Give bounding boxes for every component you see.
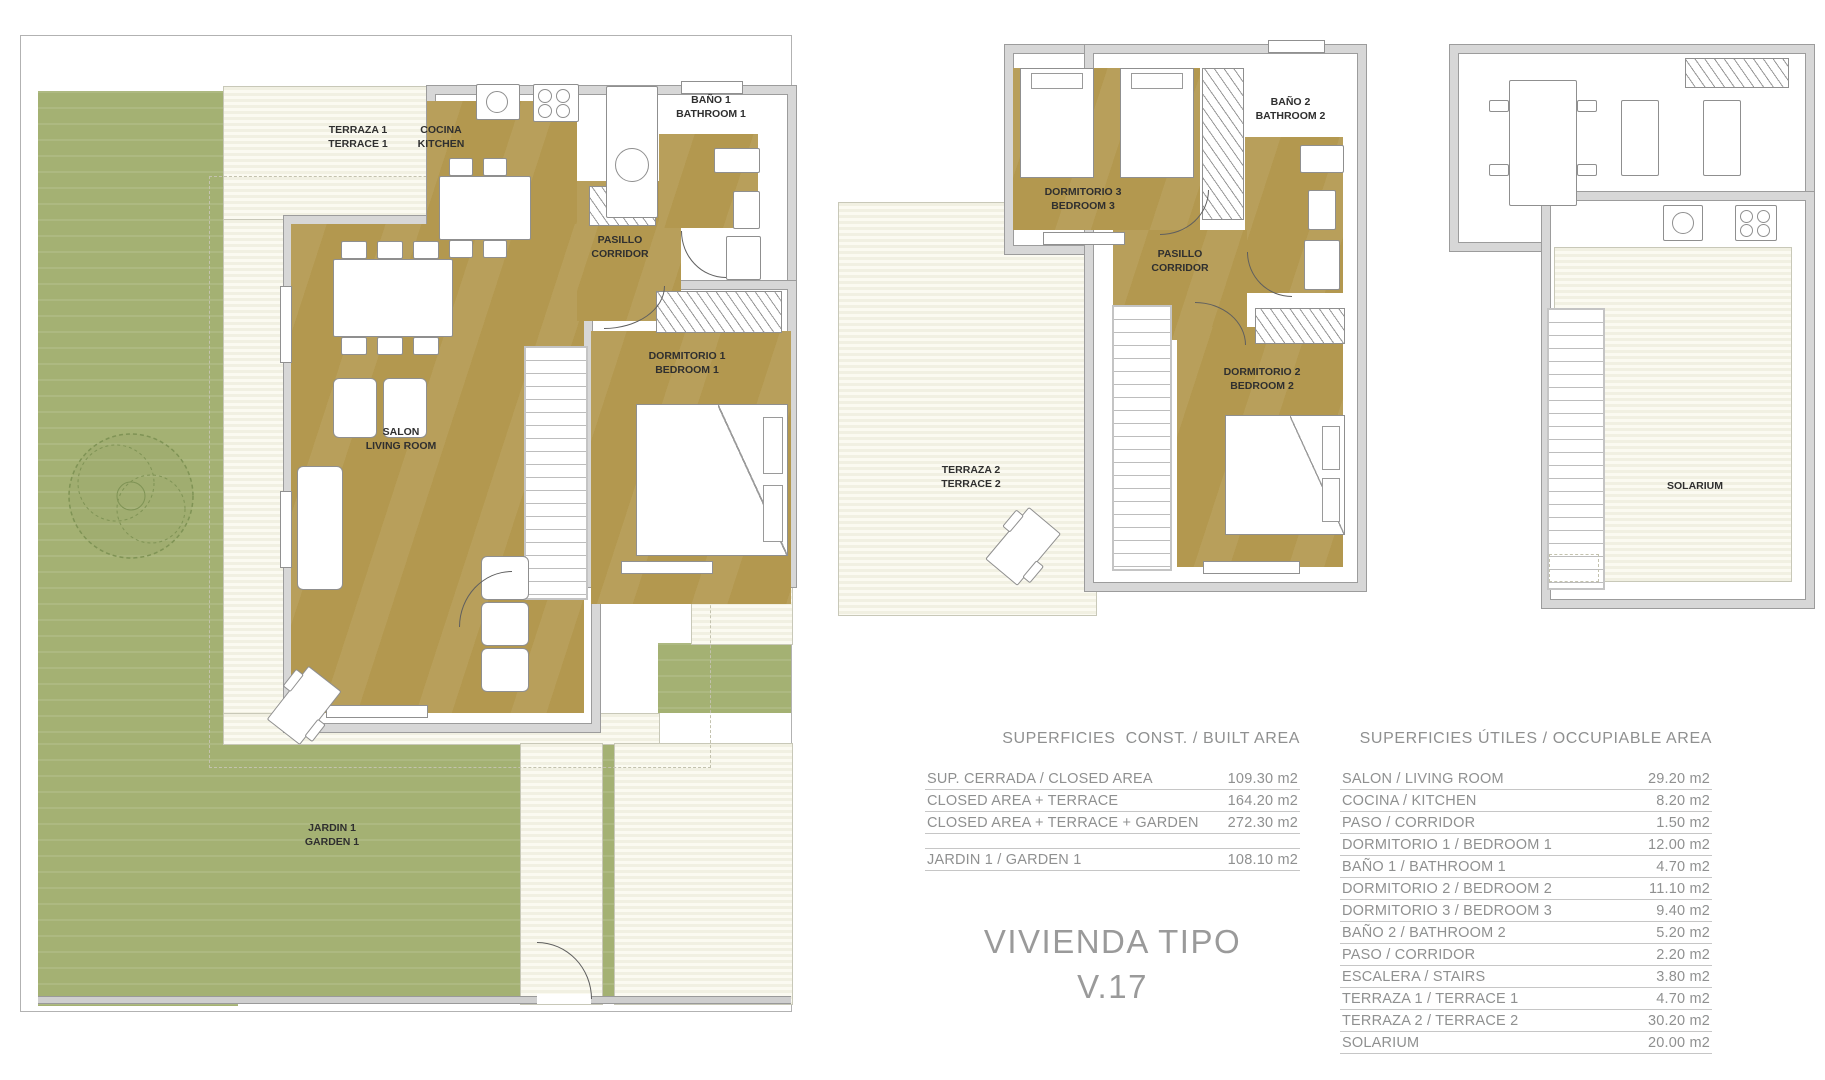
row-value: 272.30 m2 bbox=[1218, 815, 1298, 831]
label-bathroom2: BAÑO 2 BATHROOM 2 bbox=[1233, 96, 1348, 124]
row-label: JARDIN 1 / GARDEN 1 bbox=[927, 852, 1081, 868]
row-label: DORMITORIO 3 / BEDROOM 3 bbox=[1342, 903, 1552, 919]
table-row: DORMITORIO 3 / BEDROOM 3 9.40 m2 bbox=[1340, 900, 1712, 922]
title-line-1: VIVIENDA TIPO bbox=[925, 920, 1300, 965]
sink-basin-icon bbox=[486, 91, 508, 113]
row-value: 4.70 m2 bbox=[1646, 859, 1710, 875]
plot-bottom-wall bbox=[38, 996, 791, 1004]
stairs-first-floor bbox=[1112, 305, 1172, 571]
chair bbox=[413, 337, 439, 355]
kitchen-table bbox=[439, 176, 531, 240]
stairs-roof bbox=[1547, 308, 1605, 590]
shower-icon bbox=[726, 236, 761, 280]
table-row: BAÑO 1 / BATHROOM 1 4.70 m2 bbox=[1340, 856, 1712, 878]
table-row: JARDIN 1 / GARDEN 1 108.10 m2 bbox=[925, 848, 1300, 871]
page-title: VIVIENDA TIPO V.17 bbox=[925, 920, 1300, 1009]
window bbox=[280, 491, 292, 568]
row-label: SOLARIUM bbox=[1342, 1035, 1419, 1051]
row-label: PASO / CORRIDOR bbox=[1342, 947, 1475, 963]
label-kitchen: COCINA KITCHEN bbox=[381, 124, 501, 152]
double-bed bbox=[636, 404, 788, 556]
toilet-icon bbox=[733, 191, 760, 229]
table-row: PASO / CORRIDOR 2.20 m2 bbox=[1340, 944, 1712, 966]
shower-icon bbox=[1304, 240, 1340, 290]
chair bbox=[413, 241, 439, 259]
label-terrace2: TERRAZA 2 TERRACE 2 bbox=[911, 464, 1031, 492]
label-corridor-gf: PASILLO CORRIDOR bbox=[560, 234, 680, 262]
row-value: 29.20 m2 bbox=[1638, 771, 1710, 787]
chair bbox=[341, 241, 367, 259]
window bbox=[1203, 561, 1300, 574]
label-corridor-ff: PASILLO CORRIDOR bbox=[1120, 248, 1240, 276]
table-row: COCINA / KITCHEN 8.20 m2 bbox=[1340, 790, 1712, 812]
pillow bbox=[763, 485, 783, 542]
occupiable-area-header: SUPERFICIES ÚTILES / OCCUPIABLE AREA bbox=[1340, 730, 1712, 748]
pouf bbox=[481, 648, 529, 692]
outdoor-sink-basin-icon bbox=[1672, 212, 1694, 234]
stairs-ground bbox=[524, 346, 588, 600]
chair bbox=[449, 158, 473, 176]
chair bbox=[1489, 164, 1509, 176]
label-solarium: SOLARIUM bbox=[1635, 480, 1755, 494]
tree-icon bbox=[56, 421, 206, 571]
roof-table bbox=[1509, 80, 1577, 206]
chair bbox=[483, 240, 507, 258]
label-bathroom1: BAÑO 1 BATHROOM 1 bbox=[651, 94, 771, 122]
row-value: 2.20 m2 bbox=[1646, 947, 1710, 963]
table-row: DORMITORIO 1 / BEDROOM 1 12.00 m2 bbox=[1340, 834, 1712, 856]
built-area-table: SUPERFICIES CONST. / BUILT AREA SUP. CER… bbox=[925, 730, 1300, 871]
hob-burner-icon bbox=[1740, 210, 1753, 223]
row-label: DORMITORIO 2 / BEDROOM 2 bbox=[1342, 881, 1552, 897]
table-row: DORMITORIO 2 / BEDROOM 2 11.10 m2 bbox=[1340, 878, 1712, 900]
row-label: SUP. CERRADA / CLOSED AREA bbox=[927, 771, 1153, 787]
bath-sink-icon bbox=[1300, 145, 1344, 173]
floorplan-sheet: TERRAZA 1 TERRACE 1 COCINA KITCHEN BAÑO … bbox=[0, 0, 1825, 1080]
first-floor-plan: DORMITORIO 3 BEDROOM 3 BAÑO 2 BATHROOM 2… bbox=[838, 40, 1358, 620]
hob-burner-icon bbox=[538, 89, 552, 103]
hob-burner-icon bbox=[1740, 224, 1753, 237]
row-label: DORMITORIO 1 / BEDROOM 1 bbox=[1342, 837, 1552, 853]
row-value: 12.00 m2 bbox=[1638, 837, 1710, 853]
built-area-header: SUPERFICIES CONST. / BUILT AREA bbox=[925, 730, 1300, 748]
bath-sink-icon bbox=[714, 148, 760, 173]
label-bedroom3: DORMITORIO 3 BEDROOM 3 bbox=[1023, 186, 1143, 214]
roof-plan: SOLARIUM bbox=[1447, 42, 1807, 597]
row-value: 164.20 m2 bbox=[1218, 793, 1298, 809]
row-label: TERRAZA 1 / TERRACE 1 bbox=[1342, 991, 1518, 1007]
window bbox=[1043, 232, 1125, 245]
row-label: TERRAZA 2 / TERRACE 2 bbox=[1342, 1013, 1518, 1029]
bbq-hob-icon bbox=[1735, 205, 1777, 241]
double-bed bbox=[1225, 415, 1345, 535]
toilet-icon bbox=[1308, 190, 1336, 230]
hob-burner-icon bbox=[1757, 210, 1770, 223]
row-value: 108.10 m2 bbox=[1218, 852, 1298, 868]
washer-icon bbox=[615, 148, 649, 182]
chair bbox=[483, 158, 507, 176]
ground-floor-plan: TERRAZA 1 TERRACE 1 COCINA KITCHEN BAÑO … bbox=[20, 35, 792, 1012]
lounger bbox=[1621, 100, 1659, 176]
row-value: 4.70 m2 bbox=[1646, 991, 1710, 1007]
deck-path-2 bbox=[614, 743, 793, 1005]
row-value: 20.00 m2 bbox=[1638, 1035, 1710, 1051]
window bbox=[621, 561, 713, 574]
chair bbox=[377, 337, 403, 355]
hob-burner-icon bbox=[556, 104, 570, 118]
chair bbox=[1577, 164, 1597, 176]
occupiable-area-table: SUPERFICIES ÚTILES / OCCUPIABLE AREA SAL… bbox=[1340, 730, 1712, 1054]
label-bedroom1: DORMITORIO 1 BEDROOM 1 bbox=[622, 350, 752, 378]
table-row: ESCALERA / STAIRS 3.80 m2 bbox=[1340, 966, 1712, 988]
window bbox=[326, 705, 428, 718]
chair bbox=[1577, 100, 1597, 112]
window bbox=[681, 81, 743, 94]
chair bbox=[449, 240, 473, 258]
label-bedroom2: DORMITORIO 2 BEDROOM 2 bbox=[1202, 366, 1322, 394]
chair bbox=[377, 241, 403, 259]
row-label: BAÑO 1 / BATHROOM 1 bbox=[1342, 859, 1506, 875]
table-row: TERRAZA 1 / TERRACE 1 4.70 m2 bbox=[1340, 988, 1712, 1010]
lounger bbox=[1703, 100, 1741, 176]
table-row: SALON / LIVING ROOM 29.20 m2 bbox=[1340, 768, 1712, 790]
row-value: 109.30 m2 bbox=[1218, 771, 1298, 787]
label-living-room: SALON LIVING ROOM bbox=[341, 426, 461, 454]
row-label: ESCALERA / STAIRS bbox=[1342, 969, 1485, 985]
row-value: 30.20 m2 bbox=[1638, 1013, 1710, 1029]
pillow bbox=[1322, 426, 1340, 470]
table-row: SUP. CERRADA / CLOSED AREA 109.30 m2 bbox=[925, 768, 1300, 790]
hob-burner-icon bbox=[538, 104, 552, 118]
row-label: PASO / CORRIDOR bbox=[1342, 815, 1475, 831]
garden-area-bottom bbox=[38, 743, 520, 1003]
row-label: CLOSED AREA + TERRACE + GARDEN bbox=[927, 815, 1199, 831]
row-value: 3.80 m2 bbox=[1646, 969, 1710, 985]
terrace2-deck bbox=[838, 202, 1097, 616]
table-row: TERRAZA 2 / TERRACE 2 30.20 m2 bbox=[1340, 1010, 1712, 1032]
table-row: CLOSED AREA + TERRACE 164.20 m2 bbox=[925, 790, 1300, 812]
row-value: 9.40 m2 bbox=[1646, 903, 1710, 919]
dining-table bbox=[333, 259, 453, 337]
window bbox=[280, 286, 292, 363]
row-value: 1.50 m2 bbox=[1646, 815, 1710, 831]
pergola-icon bbox=[1685, 58, 1789, 88]
wardrobe-icon-bedroom1 bbox=[656, 291, 782, 333]
table-row: BAÑO 2 / BATHROOM 2 5.20 m2 bbox=[1340, 922, 1712, 944]
row-label: COCINA / KITCHEN bbox=[1342, 793, 1477, 809]
row-label: BAÑO 2 / BATHROOM 2 bbox=[1342, 925, 1506, 941]
single-bed bbox=[1120, 68, 1194, 178]
title-line-2: V.17 bbox=[925, 965, 1300, 1010]
wardrobe-icon-bedroom2 bbox=[1255, 308, 1345, 344]
label-garden: JARDIN 1 GARDEN 1 bbox=[267, 822, 397, 850]
window bbox=[1268, 40, 1325, 53]
table-row: CLOSED AREA + TERRACE + GARDEN 272.30 m2 bbox=[925, 812, 1300, 834]
row-label: SALON / LIVING ROOM bbox=[1342, 771, 1504, 787]
hob-burner-icon bbox=[556, 89, 570, 103]
row-value: 11.10 m2 bbox=[1639, 881, 1710, 897]
pillow bbox=[1322, 478, 1340, 522]
table-spacer bbox=[925, 834, 1300, 848]
row-value: 5.20 m2 bbox=[1646, 925, 1710, 941]
table-row: SOLARIUM 20.00 m2 bbox=[1340, 1032, 1712, 1054]
stairs-dashed-landing bbox=[1549, 554, 1599, 582]
row-value: 8.20 m2 bbox=[1646, 793, 1710, 809]
pillow bbox=[763, 417, 783, 474]
row-label: CLOSED AREA + TERRACE bbox=[927, 793, 1118, 809]
sofa bbox=[297, 466, 343, 590]
chair bbox=[341, 337, 367, 355]
hob-burner-icon bbox=[1757, 224, 1770, 237]
single-bed bbox=[1020, 68, 1094, 178]
chair bbox=[1489, 100, 1509, 112]
table-row: PASO / CORRIDOR 1.50 m2 bbox=[1340, 812, 1712, 834]
